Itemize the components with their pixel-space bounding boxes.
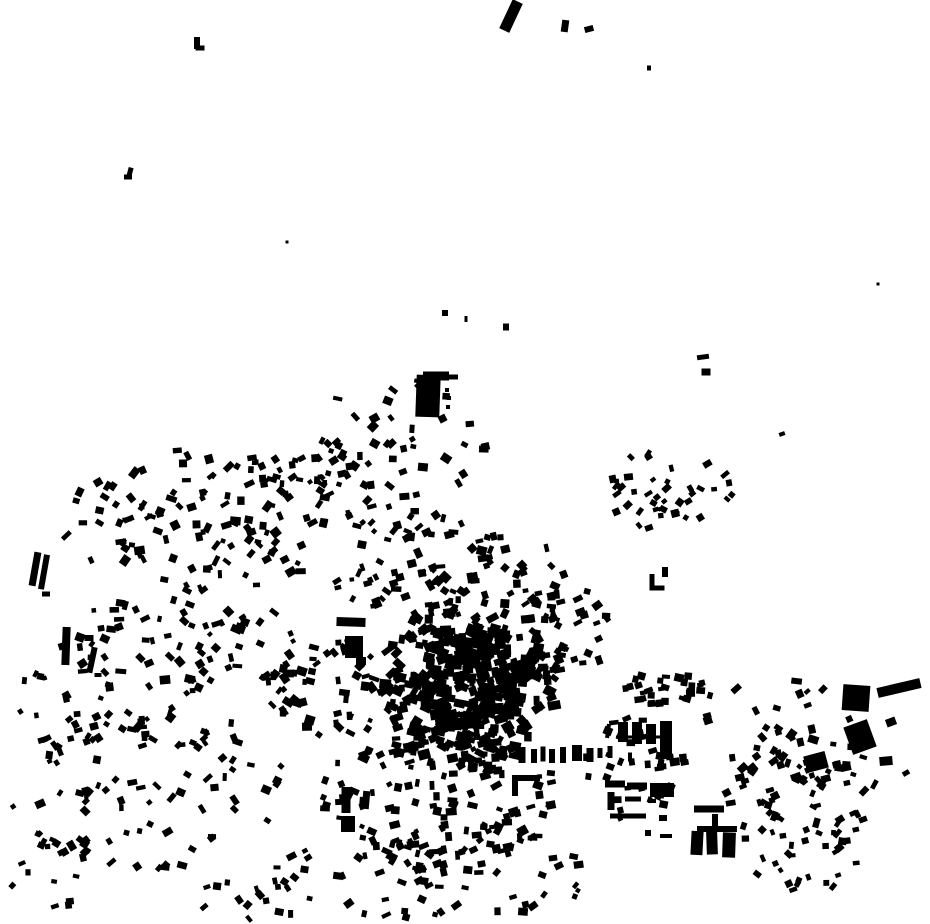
building (652, 507, 659, 513)
building (103, 721, 110, 728)
building (725, 799, 736, 806)
building (690, 831, 703, 856)
building (237, 496, 244, 504)
building (145, 682, 153, 691)
building (762, 723, 771, 732)
building (85, 635, 94, 641)
building (516, 634, 523, 642)
building (124, 708, 133, 717)
building (325, 470, 332, 477)
building (183, 690, 190, 697)
building (95, 506, 104, 514)
building (465, 738, 470, 744)
building (547, 779, 556, 786)
building (37, 736, 47, 744)
building (195, 642, 204, 652)
building (362, 495, 373, 506)
building (391, 806, 400, 814)
building (617, 806, 624, 814)
building (669, 464, 675, 472)
building (333, 710, 342, 718)
building (556, 598, 566, 605)
building (206, 655, 213, 663)
building (288, 910, 293, 918)
building (357, 540, 367, 549)
building (627, 739, 636, 746)
building (74, 632, 85, 643)
building (730, 683, 742, 694)
building (430, 726, 441, 736)
building (307, 479, 313, 485)
building (728, 491, 736, 499)
building (499, 688, 506, 693)
building (650, 586, 665, 591)
building (820, 774, 831, 783)
building (491, 753, 499, 762)
building (538, 810, 547, 818)
building (409, 425, 414, 434)
building (490, 724, 499, 733)
building (632, 675, 640, 683)
building (537, 774, 542, 779)
building (361, 910, 367, 918)
building (295, 568, 305, 574)
building (77, 658, 89, 669)
building (164, 633, 172, 639)
building (648, 747, 658, 755)
building (697, 826, 737, 832)
building (292, 669, 297, 676)
building (635, 522, 642, 530)
building (91, 712, 101, 722)
building (645, 830, 651, 836)
building (474, 870, 483, 875)
building (315, 731, 323, 739)
building (428, 531, 435, 537)
building (22, 677, 27, 684)
building (56, 789, 63, 797)
building (432, 911, 438, 917)
building (210, 784, 219, 792)
building (269, 526, 282, 539)
building (526, 614, 535, 623)
building (218, 570, 222, 578)
building (791, 677, 802, 684)
building (502, 653, 508, 659)
building (454, 478, 463, 488)
building (254, 459, 259, 464)
building (485, 702, 493, 712)
building (211, 540, 221, 551)
building (89, 722, 99, 731)
building (211, 643, 222, 654)
building (276, 466, 283, 473)
building (444, 530, 455, 540)
building (169, 519, 181, 531)
building (613, 796, 622, 803)
building (535, 790, 544, 799)
building (674, 673, 685, 683)
building (838, 837, 847, 845)
building (177, 861, 188, 870)
building (142, 637, 150, 643)
building (470, 658, 479, 666)
building (386, 781, 393, 788)
building (594, 635, 603, 644)
building (489, 824, 497, 829)
building (391, 586, 402, 592)
building (232, 738, 243, 747)
building (606, 762, 615, 771)
building (263, 817, 271, 825)
building (72, 497, 80, 504)
building (101, 786, 110, 795)
building (217, 753, 227, 763)
building (306, 896, 312, 902)
building (543, 543, 549, 552)
building (497, 534, 503, 540)
building (509, 894, 517, 900)
building (522, 901, 530, 909)
building (45, 751, 53, 760)
building (367, 518, 375, 526)
building (440, 868, 448, 877)
building (379, 761, 386, 769)
building (222, 605, 234, 617)
building (506, 698, 519, 711)
building (93, 733, 103, 744)
building (228, 653, 234, 662)
building (123, 829, 130, 836)
building (569, 853, 579, 860)
building (170, 596, 177, 605)
building (429, 709, 439, 721)
building (784, 849, 794, 859)
building (473, 624, 483, 634)
building (879, 756, 893, 766)
building (446, 405, 450, 409)
building (532, 780, 544, 791)
building (789, 842, 794, 849)
building (349, 577, 354, 582)
building (187, 564, 197, 574)
building (808, 772, 815, 779)
building (8, 882, 16, 890)
building (300, 865, 309, 873)
building (223, 773, 227, 781)
building (418, 842, 430, 851)
building (271, 672, 277, 681)
building (371, 528, 377, 535)
building (335, 676, 341, 684)
building (617, 757, 625, 766)
building (729, 754, 736, 762)
building (466, 789, 475, 799)
building (661, 498, 668, 505)
building (126, 492, 137, 503)
building (247, 762, 255, 768)
building (812, 817, 821, 828)
building (609, 720, 619, 726)
building (353, 852, 364, 863)
building (449, 661, 456, 668)
building (451, 900, 463, 911)
building (464, 826, 470, 834)
building (273, 865, 280, 869)
building (436, 907, 445, 917)
building (213, 882, 222, 890)
building (696, 513, 705, 522)
building (467, 676, 476, 683)
building (778, 431, 785, 437)
building (435, 884, 444, 888)
building (426, 693, 433, 701)
building (185, 600, 195, 608)
building (277, 762, 284, 769)
building (513, 580, 521, 588)
building (409, 436, 416, 443)
building (188, 845, 197, 853)
building (95, 519, 105, 528)
building (111, 775, 119, 783)
building (644, 524, 653, 532)
building (659, 815, 667, 821)
building (274, 908, 284, 917)
building (407, 559, 418, 569)
building (198, 804, 207, 814)
building (389, 820, 401, 830)
building (605, 781, 625, 788)
building (583, 648, 593, 658)
building (179, 616, 190, 626)
building (245, 915, 253, 923)
building (688, 682, 695, 690)
building (772, 704, 781, 711)
building (458, 520, 465, 528)
building (77, 643, 83, 651)
building (182, 478, 191, 482)
building (367, 420, 379, 432)
building (803, 702, 812, 709)
building (333, 396, 343, 402)
building (753, 870, 762, 879)
building (10, 803, 17, 810)
building (66, 898, 74, 905)
building (372, 601, 378, 608)
building (112, 500, 120, 509)
building (224, 879, 230, 886)
building (707, 692, 714, 700)
building (481, 590, 489, 599)
building (381, 911, 391, 919)
building (547, 562, 556, 571)
building (389, 840, 396, 848)
building (902, 769, 911, 777)
building (449, 588, 457, 594)
building (42, 592, 50, 597)
building (801, 837, 809, 845)
building (304, 853, 313, 862)
building (399, 493, 409, 501)
building (410, 444, 416, 450)
building (870, 779, 879, 790)
building (61, 690, 71, 700)
building (321, 776, 329, 785)
building (260, 784, 272, 795)
building (244, 515, 253, 524)
building (815, 830, 823, 837)
building (573, 619, 583, 627)
building (374, 868, 385, 876)
building (722, 832, 736, 857)
building (199, 495, 206, 502)
building (411, 798, 419, 807)
building (769, 829, 775, 836)
figure-ground-map (0, 0, 930, 924)
building (842, 684, 871, 712)
building (328, 448, 334, 454)
building (583, 588, 591, 595)
building (51, 879, 57, 884)
building (547, 595, 555, 601)
building (559, 570, 568, 580)
building (132, 605, 140, 614)
building (339, 794, 345, 802)
building (404, 782, 413, 791)
building (415, 779, 420, 787)
building (294, 560, 300, 566)
building (447, 783, 457, 793)
building (446, 375, 458, 380)
building (784, 758, 792, 768)
building (845, 715, 853, 723)
building (385, 503, 392, 510)
building (127, 779, 138, 787)
building (53, 759, 60, 766)
building (634, 696, 644, 703)
building (547, 770, 555, 776)
building (266, 677, 272, 685)
building (682, 514, 689, 521)
building (415, 679, 421, 690)
building (398, 634, 405, 644)
building (624, 473, 634, 481)
building (311, 454, 318, 462)
building (847, 743, 853, 750)
building (477, 860, 486, 868)
building (136, 785, 146, 791)
building (480, 598, 488, 607)
building (475, 705, 481, 711)
building (572, 881, 579, 889)
building (114, 617, 124, 622)
building (74, 486, 84, 497)
building (777, 867, 783, 873)
building (465, 421, 474, 428)
building (367, 718, 373, 724)
building (443, 668, 454, 676)
building (726, 479, 733, 486)
building (339, 689, 350, 697)
building (765, 787, 774, 794)
building (179, 459, 187, 467)
building (571, 893, 578, 900)
building (594, 655, 603, 666)
building (448, 598, 454, 606)
building (73, 874, 80, 879)
building (622, 500, 632, 510)
building (813, 803, 821, 809)
building (696, 485, 705, 493)
building (34, 798, 46, 809)
building (146, 820, 154, 828)
building (706, 831, 718, 854)
building (329, 647, 339, 657)
building (336, 617, 365, 627)
building (259, 522, 266, 530)
building (203, 565, 211, 573)
building (759, 854, 766, 862)
building (784, 879, 793, 888)
building (825, 768, 832, 775)
building (432, 806, 442, 816)
building (473, 721, 484, 730)
building (458, 469, 468, 480)
building (721, 788, 731, 798)
building (753, 744, 760, 751)
building (106, 857, 116, 867)
building (186, 502, 197, 512)
building (502, 819, 512, 826)
building (631, 489, 637, 495)
building (584, 25, 594, 33)
building (279, 555, 289, 565)
building (522, 588, 528, 593)
building (179, 742, 186, 747)
building (296, 541, 306, 551)
building (554, 861, 565, 871)
building (280, 686, 288, 694)
building (349, 595, 356, 603)
building (417, 894, 427, 904)
building (363, 724, 372, 733)
building (481, 442, 491, 451)
building (115, 668, 126, 674)
building (647, 702, 656, 707)
building (255, 617, 264, 627)
building (398, 468, 407, 476)
building (207, 631, 213, 637)
building (570, 656, 578, 664)
building (320, 794, 327, 802)
building (572, 594, 583, 603)
building (453, 698, 466, 708)
building (796, 763, 802, 769)
building (885, 717, 897, 728)
building (441, 772, 447, 780)
building (850, 772, 857, 778)
building (823, 880, 829, 886)
building (822, 843, 829, 849)
building (585, 773, 592, 780)
building (772, 860, 779, 867)
building (666, 754, 674, 761)
building (388, 385, 398, 394)
building (272, 877, 278, 884)
building (757, 732, 767, 743)
building (382, 395, 393, 406)
building (244, 479, 256, 488)
